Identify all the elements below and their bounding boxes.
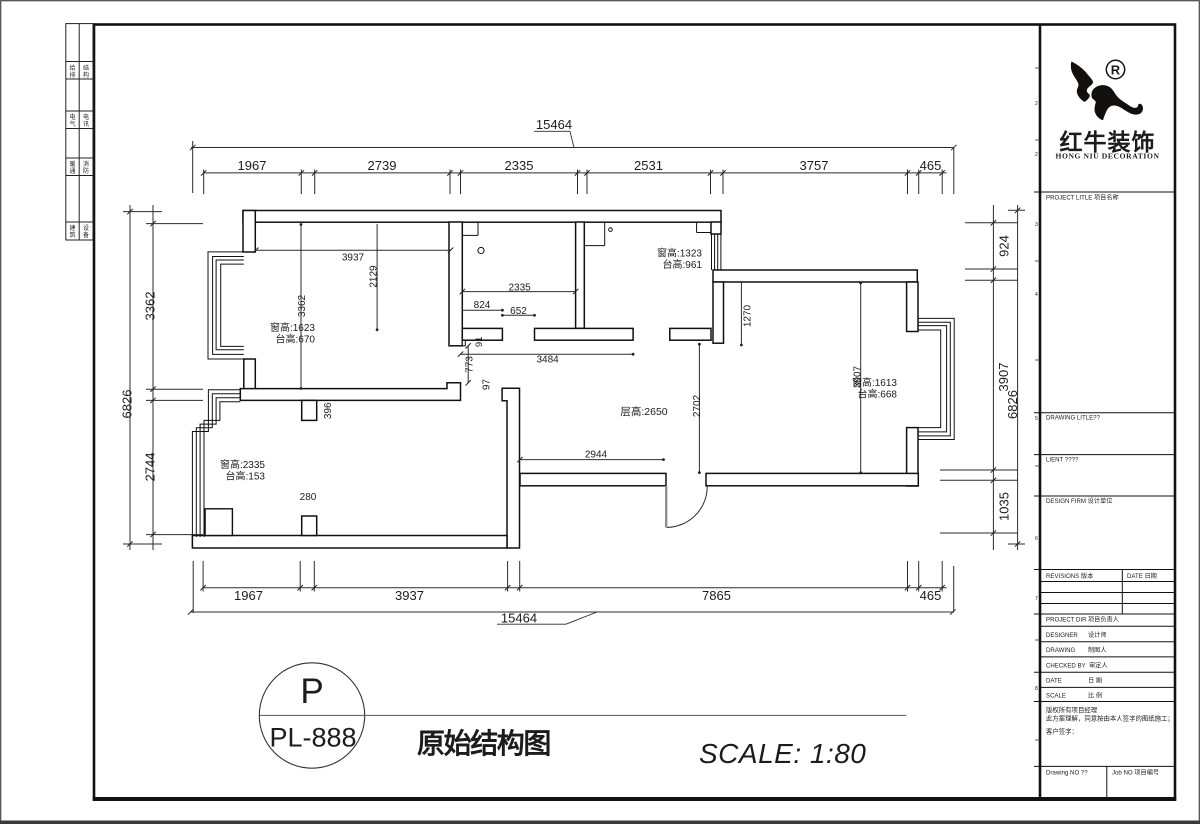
svg-text:窗高:1323: 窗高:1323 xyxy=(657,247,702,260)
svg-text:6826: 6826 xyxy=(120,390,135,419)
svg-text:DESIGN FIRM 设计单位: DESIGN FIRM 设计单位 xyxy=(1046,497,1112,505)
svg-text:气: 气 xyxy=(69,120,75,128)
svg-text:项目负责人: 项目负责人 xyxy=(1088,616,1119,624)
svg-text:制图人: 制图人 xyxy=(1088,646,1107,654)
svg-text:7: 7 xyxy=(1035,596,1038,602)
svg-text:备: 备 xyxy=(83,231,89,239)
svg-text:8: 8 xyxy=(1035,686,1038,692)
svg-text:7865: 7865 xyxy=(702,588,731,603)
svg-text:924: 924 xyxy=(997,235,1012,257)
svg-text:CHECKED BY: CHECKED BY xyxy=(1046,663,1086,670)
svg-text:设计师: 设计师 xyxy=(1088,631,1107,639)
svg-text:3484: 3484 xyxy=(536,354,559,365)
svg-text:3362: 3362 xyxy=(143,292,158,321)
svg-text:版权所有项目经理: 版权所有项目经理 xyxy=(1046,705,1098,714)
svg-text:6826: 6826 xyxy=(1005,390,1020,419)
svg-text:2702: 2702 xyxy=(692,394,703,417)
svg-text:消: 消 xyxy=(83,160,89,168)
svg-text:396: 396 xyxy=(323,402,334,419)
svg-text:此方案理解，同意按由本人签字的图纸施工；: 此方案理解，同意按由本人签字的图纸施工； xyxy=(1046,714,1174,723)
svg-text:3757: 3757 xyxy=(800,158,829,173)
svg-text:电: 电 xyxy=(69,113,75,121)
svg-text:SCALE: 1:80: SCALE: 1:80 xyxy=(699,738,866,769)
svg-text:建: 建 xyxy=(69,224,75,232)
svg-text:筑: 筑 xyxy=(69,231,75,239)
svg-text:91: 91 xyxy=(474,337,485,348)
svg-text:773: 773 xyxy=(465,356,476,373)
svg-text:客户签字：: 客户签字： xyxy=(1046,727,1078,736)
svg-text:2744: 2744 xyxy=(143,453,158,482)
svg-text:给: 给 xyxy=(69,64,75,72)
svg-text:HONG NIU DECORATION: HONG NIU DECORATION xyxy=(1055,152,1159,161)
svg-text:4: 4 xyxy=(1035,292,1038,298)
svg-text:2129: 2129 xyxy=(368,265,379,288)
svg-text:构: 构 xyxy=(83,71,89,79)
svg-text:97: 97 xyxy=(482,379,493,391)
svg-text:比 例: 比 例 xyxy=(1088,692,1102,700)
svg-text:2335: 2335 xyxy=(508,283,531,294)
svg-text:Job NO 项目编号: Job NO 项目编号 xyxy=(1112,769,1159,777)
svg-text:台高:153: 台高:153 xyxy=(226,470,266,483)
svg-text:讯: 讯 xyxy=(83,120,89,128)
svg-text:15464: 15464 xyxy=(501,610,537,625)
svg-text:LIENT ????: LIENT ???? xyxy=(1046,457,1079,464)
svg-text:台高:668: 台高:668 xyxy=(858,388,898,401)
svg-text:15464: 15464 xyxy=(536,117,572,132)
svg-text:3: 3 xyxy=(1035,222,1038,228)
svg-text:465: 465 xyxy=(920,588,942,603)
svg-text:2739: 2739 xyxy=(368,158,397,173)
svg-text:PROJECT DIR: PROJECT DIR xyxy=(1046,617,1087,624)
svg-text:结: 结 xyxy=(83,64,89,72)
svg-text:3907: 3907 xyxy=(996,363,1011,392)
svg-text:层高:2650: 层高:2650 xyxy=(620,405,667,418)
svg-text:设: 设 xyxy=(83,224,89,232)
svg-text:2: 2 xyxy=(1035,101,1038,107)
svg-text:280: 280 xyxy=(300,492,317,503)
svg-text:6: 6 xyxy=(1035,536,1038,542)
svg-text:2944: 2944 xyxy=(585,450,608,461)
svg-text:652: 652 xyxy=(510,306,527,317)
svg-text:SCALE: SCALE xyxy=(1046,693,1066,700)
svg-text:DATE: DATE xyxy=(1046,678,1062,685)
svg-text:电: 电 xyxy=(83,113,89,121)
svg-text:DATE 日期: DATE 日期 xyxy=(1127,572,1157,580)
svg-text:窗高:1623: 窗高:1623 xyxy=(270,321,315,334)
svg-text:2531: 2531 xyxy=(634,158,663,173)
svg-text:3937: 3937 xyxy=(342,253,365,264)
svg-text:通: 通 xyxy=(69,167,75,175)
svg-text:2335: 2335 xyxy=(505,158,534,173)
svg-text:台高:961: 台高:961 xyxy=(663,258,703,271)
svg-text:DESIGNER: DESIGNER xyxy=(1046,632,1078,639)
svg-text:日 期: 日 期 xyxy=(1088,677,1102,685)
svg-text:防: 防 xyxy=(83,167,89,175)
svg-text:DRAWING: DRAWING xyxy=(1046,647,1075,654)
svg-text:465: 465 xyxy=(920,158,942,173)
svg-text:1035: 1035 xyxy=(997,492,1012,521)
svg-text:1967: 1967 xyxy=(238,158,267,173)
svg-text:窗高:1613: 窗高:1613 xyxy=(852,376,897,389)
svg-text:DRAWING LITLE??: DRAWING LITLE?? xyxy=(1046,415,1101,422)
svg-text:审定人: 审定人 xyxy=(1089,662,1108,670)
svg-text:R: R xyxy=(1111,63,1121,78)
svg-text:窗高:2335: 窗高:2335 xyxy=(220,458,265,471)
svg-text:5: 5 xyxy=(1035,416,1038,422)
svg-text:824: 824 xyxy=(474,300,491,311)
svg-text:Drawing NO ??: Drawing NO ?? xyxy=(1046,770,1088,777)
svg-text:REVISIONS 版本: REVISIONS 版本 xyxy=(1046,572,1093,580)
svg-text:暖: 暖 xyxy=(69,160,75,168)
svg-text:PL-888: PL-888 xyxy=(269,723,356,753)
svg-text:台高:670: 台高:670 xyxy=(276,333,316,346)
svg-text:排: 排 xyxy=(69,71,75,79)
svg-text:3937: 3937 xyxy=(395,588,424,603)
svg-text:1967: 1967 xyxy=(234,588,263,603)
svg-text:3362: 3362 xyxy=(297,294,308,317)
svg-text:原始结构图: 原始结构图 xyxy=(417,728,550,759)
svg-text:2: 2 xyxy=(1035,152,1038,158)
svg-text:1270: 1270 xyxy=(743,304,754,327)
svg-text:PROJECT LITLE 项目名称: PROJECT LITLE 项目名称 xyxy=(1046,194,1119,202)
svg-text:P: P xyxy=(300,672,323,711)
